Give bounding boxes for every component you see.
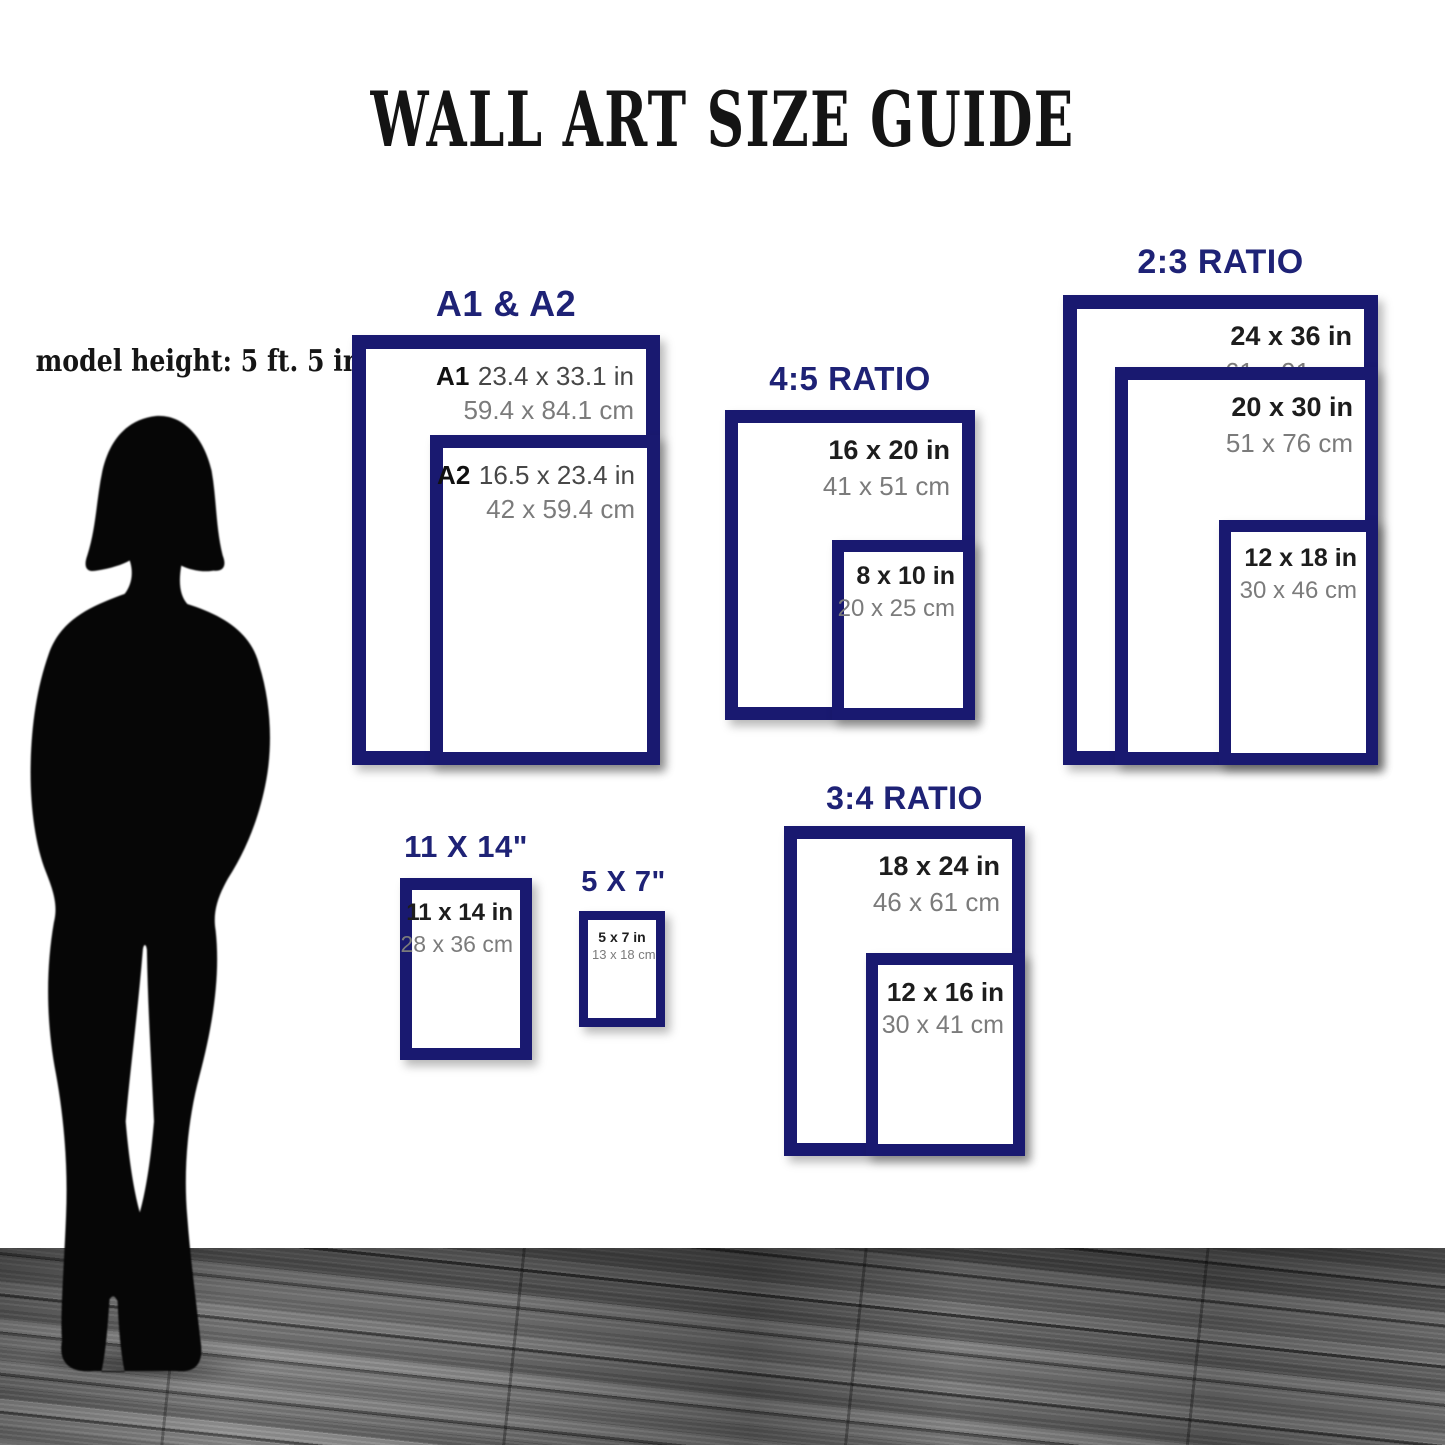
frame-11x14-label: 11 x 14 in 28 x 36 cm	[401, 897, 514, 959]
frame-12x16: 12 x 16 in 30 x 41 cm	[866, 953, 1025, 1156]
header-3-4-ratio: 3:4 RATIO	[784, 780, 1025, 817]
size-cm: 51 x 76 cm	[1226, 426, 1353, 460]
header-a1-a2: A1 & A2	[352, 283, 660, 325]
size-inches: 18 x 24 in	[873, 849, 1000, 885]
frame-12x16-label: 12 x 16 in 30 x 41 cm	[882, 975, 1004, 1042]
frame-5x7: 5 x 7 in 13 x 18 cm	[579, 911, 665, 1027]
size-inches: 8 x 10 in	[838, 560, 955, 593]
page-title: WALL ART SIZE GUIDE	[231, 82, 1214, 158]
size-inches: 16 x 20 in	[823, 433, 950, 469]
size-inches: 5 x 7 in	[592, 928, 652, 946]
frame-a1-label: A123.4 x 33.1 in 59.4 x 84.1 cm	[436, 359, 634, 428]
wall-art-size-guide: WALL ART SIZE GUIDE model height: 5 ft. …	[0, 0, 1445, 1445]
frame-18x24-label: 18 x 24 in 46 x 61 cm	[873, 849, 1000, 919]
size-cm: 30 x 41 cm	[882, 1009, 1004, 1042]
size-cm: 41 x 51 cm	[823, 469, 950, 503]
frame-16x20-label: 16 x 20 in 41 x 51 cm	[823, 433, 950, 503]
size-prefix: A1	[436, 361, 469, 391]
size-cm: 13 x 18 cm	[592, 946, 652, 963]
frame-12x18: 12 x 18 in 30 x 46 cm	[1219, 520, 1378, 765]
size-cm: 20 x 25 cm	[838, 593, 955, 625]
size-cm: 42 x 59.4 cm	[437, 492, 635, 526]
size-inches: 11 x 14 in	[401, 897, 514, 929]
header-4-5-ratio: 4:5 RATIO	[725, 360, 975, 398]
size-cm: 28 x 36 cm	[401, 929, 514, 959]
frame-11x14: 11 x 14 in 28 x 36 cm	[400, 878, 532, 1060]
size-prefix: A2	[437, 460, 470, 490]
frame-5x7-label: 5 x 7 in 13 x 18 cm	[592, 928, 652, 964]
woman-silhouette-path	[31, 416, 270, 1372]
header-5x7: 5 X 7"	[566, 866, 681, 899]
frame-12x18-label: 12 x 18 in 30 x 46 cm	[1240, 542, 1357, 607]
size-cm: 30 x 46 cm	[1240, 575, 1357, 607]
size-inches: A216.5 x 23.4 in	[437, 458, 635, 492]
header-11x14: 11 X 14"	[386, 829, 546, 865]
size-inches: 12 x 18 in	[1240, 542, 1357, 575]
model-height-label: model height: 5 ft. 5 in	[36, 344, 305, 379]
size-inches: 12 x 16 in	[882, 975, 1004, 1009]
size-cm: 59.4 x 84.1 cm	[436, 393, 634, 427]
frame-8x10-label: 8 x 10 in 20 x 25 cm	[838, 560, 955, 625]
size-inches: 20 x 30 in	[1226, 390, 1353, 426]
size-cm: 46 x 61 cm	[873, 885, 1000, 919]
size-inches: A123.4 x 33.1 in	[436, 359, 634, 393]
frame-a2-label: A216.5 x 23.4 in 42 x 59.4 cm	[437, 458, 635, 527]
size-inches: 24 x 36 in	[1225, 319, 1352, 355]
frame-a2: A216.5 x 23.4 in 42 x 59.4 cm	[430, 435, 660, 765]
woman-silhouette	[24, 414, 288, 1374]
frame-8x10: 8 x 10 in 20 x 25 cm	[832, 540, 975, 720]
frame-20x30-label: 20 x 30 in 51 x 76 cm	[1226, 390, 1353, 460]
header-2-3-ratio: 2:3 RATIO	[1063, 243, 1378, 282]
